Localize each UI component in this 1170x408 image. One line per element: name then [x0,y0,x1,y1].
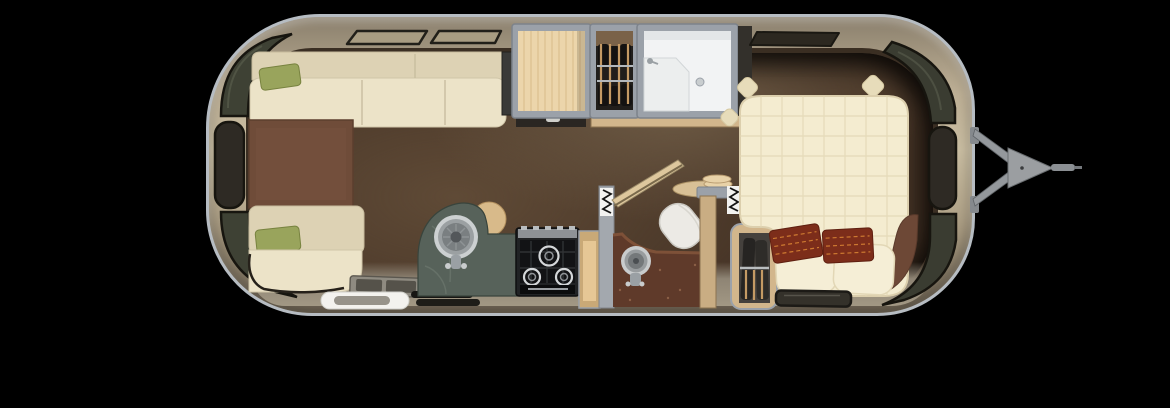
window-sheen [784,294,840,296]
rust-accent-pillow [769,223,824,263]
vessel-sink-drain [633,258,639,264]
faucet-handle [640,282,645,287]
front-side-window [929,127,956,209]
floorplan-stage [0,0,1170,408]
step-tread [386,280,416,293]
toilet-room [599,160,740,308]
coupler-latch [1020,166,1024,170]
bathroom-ceiling-shade [644,31,731,40]
tow-hitch [970,127,1082,213]
toilet-faucet [630,273,641,286]
sink-faucet [451,255,461,269]
rear-side-window [215,122,244,208]
bathroom-wall [700,196,716,308]
front-roof-window [750,32,839,46]
wardrobe-back-panel [596,31,633,46]
open-shelf-inner [583,241,596,301]
brown-ottoman-texture [256,128,346,200]
street-side-window [776,290,851,306]
roof-window [347,31,427,44]
rust-accent-pillow [822,228,874,264]
step-tread [356,279,382,292]
floorplan-objects [0,0,1170,408]
hitch-tongue [1051,164,1075,171]
cooktop-rail [518,229,577,238]
privacy-door-shadow [614,165,682,206]
door-mat [416,299,480,306]
shower-drain [696,78,704,86]
hitch-coupler [1008,148,1053,188]
entry-door-inner [334,296,390,305]
galley-compartments [512,24,752,127]
sink-drain-cap [451,232,462,243]
shower-vanity [644,58,689,111]
sofa-left-seat-cushion [249,250,362,292]
faucet-handle [626,282,631,287]
faucet-handle [461,263,467,269]
galley [418,202,600,308]
roof-window [431,31,501,43]
wood-cabinet-shade [577,31,585,111]
faucet-handle [445,263,451,269]
hitch-tongue-tip [1074,166,1082,169]
